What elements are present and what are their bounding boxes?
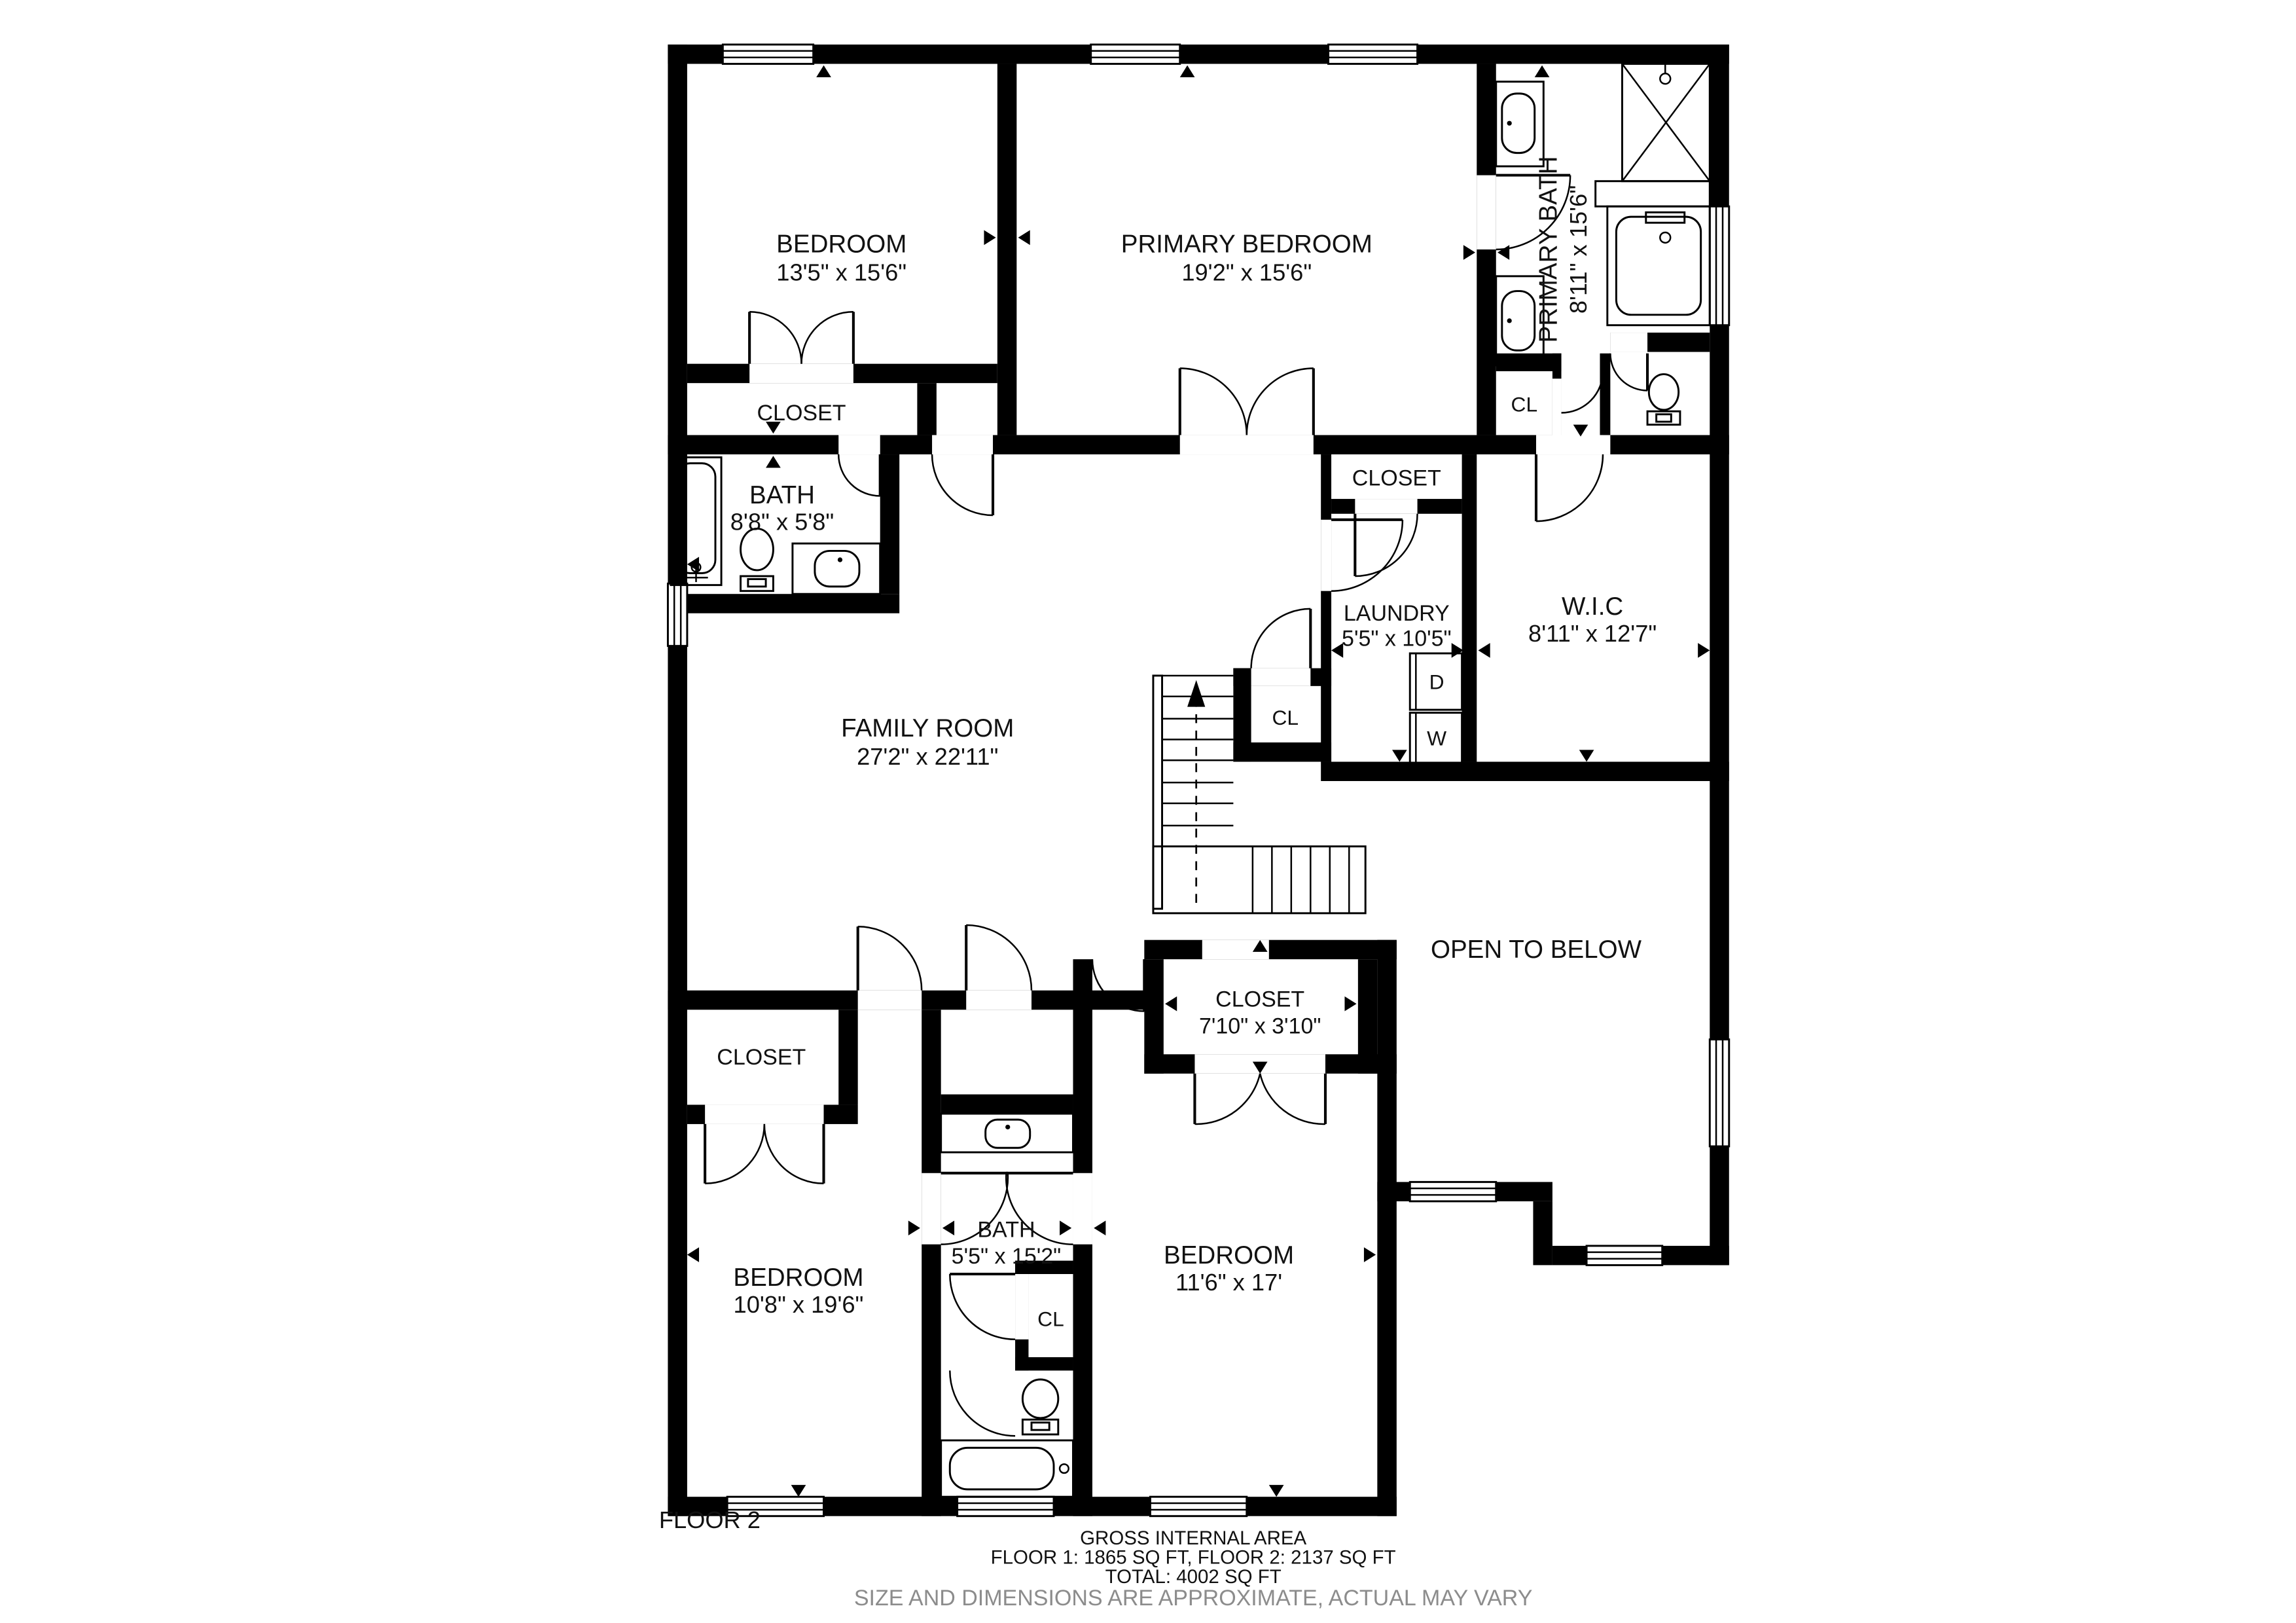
room-dims-bedroom-top-left: 13'5" x 15'6": [776, 259, 906, 286]
room-label-closet-center: CLOSET: [1215, 987, 1304, 1012]
door-swing-icon: [749, 312, 853, 363]
door-swing-icon: [1355, 514, 1417, 576]
footer-disclaimer: SIZE AND DIMENSIONS ARE APPROXIMATE, ACT…: [854, 1586, 1533, 1611]
door-swing-icon: [966, 925, 1031, 991]
room-label-closet-top-left: CLOSET: [757, 401, 846, 426]
bathtub-icon: [941, 1440, 1073, 1497]
door-swing-icon: [950, 1274, 1015, 1340]
room-label-closet-hall: CLOSET: [1352, 466, 1441, 491]
door-swing-icon: [705, 1124, 823, 1184]
dryer-label: D: [1429, 670, 1444, 693]
window-icon: [1410, 1182, 1496, 1201]
toilet-icon: [741, 528, 774, 591]
room-labels: BEDROOM 13'5" x 15'6" PRIMARY BEDROOM 19…: [717, 156, 1657, 1331]
room-label-open-to-below: OPEN TO BELOW: [1431, 936, 1642, 964]
door-openings: [705, 175, 1647, 1340]
footer-total-area: TOTAL: 4002 SQ FT: [1105, 1566, 1282, 1588]
room-dims-closet-center: 7'10" x 3'10": [1199, 1014, 1321, 1039]
room-dims-bath-upper: 8'8" x 5'8": [730, 509, 834, 536]
door-swing-icon: [932, 454, 993, 515]
door-swing-icon: [858, 926, 922, 991]
window-icon: [958, 1497, 1054, 1516]
room-dims-wic: 8'11" x 12'7": [1528, 620, 1657, 647]
room-label-cl-primary-bath: CL: [1511, 392, 1538, 416]
floor-plan-svg: BEDROOM 13'5" x 15'6" PRIMARY BEDROOM 19…: [0, 0, 2296, 1623]
floor-label: FLOOR 2: [659, 1506, 761, 1533]
room-label-cl-stairs: CL: [1272, 706, 1299, 729]
footer-gross-area: GROSS INTERNAL AREA: [1080, 1527, 1306, 1549]
room-dims-primary-bath: 8'11" x 15'6": [1565, 185, 1592, 314]
room-label-family-room: FAMILY ROOM: [841, 714, 1014, 742]
door-swing-icon: [1562, 371, 1603, 413]
window-icon: [1091, 45, 1180, 64]
room-label-closet-bottom-left: CLOSET: [717, 1045, 806, 1070]
room-label-cl-bath-lower: CL: [1037, 1307, 1064, 1330]
door-swing-icon: [1331, 520, 1403, 591]
window-icon: [1710, 206, 1729, 325]
bathtub-icon: [1596, 181, 1710, 325]
room-label-bedroom-bottom-right: BEDROOM: [1164, 1241, 1294, 1269]
door-swing-icon: [1610, 354, 1647, 391]
room-label-bath-lower: BATH: [977, 1217, 1035, 1242]
shower-icon: [1623, 64, 1710, 181]
sink-icon: [941, 1114, 1073, 1152]
toilet-icon: [1022, 1379, 1058, 1434]
toilet-icon: [1647, 374, 1680, 425]
room-label-laundry: LAUNDRY: [1344, 601, 1450, 626]
room-dims-family-room: 27'2" x 22'11": [857, 743, 998, 770]
room-label-primary-bath: PRIMARY BATH: [1535, 156, 1563, 343]
door-swing-icon: [1251, 609, 1311, 668]
sink-icon: [793, 543, 880, 594]
window-icon: [668, 583, 687, 646]
window-icon: [1150, 1497, 1246, 1516]
floor-plan-page: BEDROOM 13'5" x 15'6" PRIMARY BEDROOM 19…: [0, 0, 2296, 1623]
room-label-bedroom-bottom-left: BEDROOM: [733, 1264, 863, 1292]
door-swing-icon: [1536, 454, 1603, 521]
annotations: FLOOR 2 GROSS INTERNAL AREA FLOOR 1: 186…: [659, 1506, 1533, 1611]
window-icon: [1710, 1040, 1729, 1146]
room-dims-bath-lower: 5'5" x 15'2": [952, 1244, 1062, 1269]
sink-icon: [1496, 82, 1544, 166]
room-label-wic: W.I.C: [1562, 593, 1623, 621]
room-dims-primary-bedroom: 19'2" x 15'6": [1181, 259, 1312, 286]
door-swing-icon: [838, 454, 880, 496]
window-icon: [1587, 1246, 1662, 1265]
door-swing-icon: [1194, 1074, 1325, 1124]
room-dims-bedroom-bottom-left: 10'8" x 19'6": [734, 1291, 864, 1318]
room-dims-bedroom-bottom-right: 11'6" x 17': [1175, 1269, 1282, 1296]
window-icon: [723, 45, 813, 64]
washer-label: W: [1427, 727, 1446, 750]
window-icon: [1329, 45, 1418, 64]
footer-floor-areas: FLOOR 1: 1865 SQ FT, FLOOR 2: 2137 SQ FT: [991, 1546, 1396, 1568]
room-label-bedroom-top-left: BEDROOM: [776, 230, 906, 259]
stairs-up-icon: [1153, 676, 1365, 913]
room-label-bath-upper: BATH: [749, 481, 815, 509]
room-label-primary-bedroom: PRIMARY BEDROOM: [1121, 230, 1372, 259]
door-swing-icon: [1180, 368, 1314, 435]
door-swing-icon: [950, 1370, 1015, 1436]
room-dims-laundry: 5'5" x 10'5": [1342, 627, 1452, 651]
